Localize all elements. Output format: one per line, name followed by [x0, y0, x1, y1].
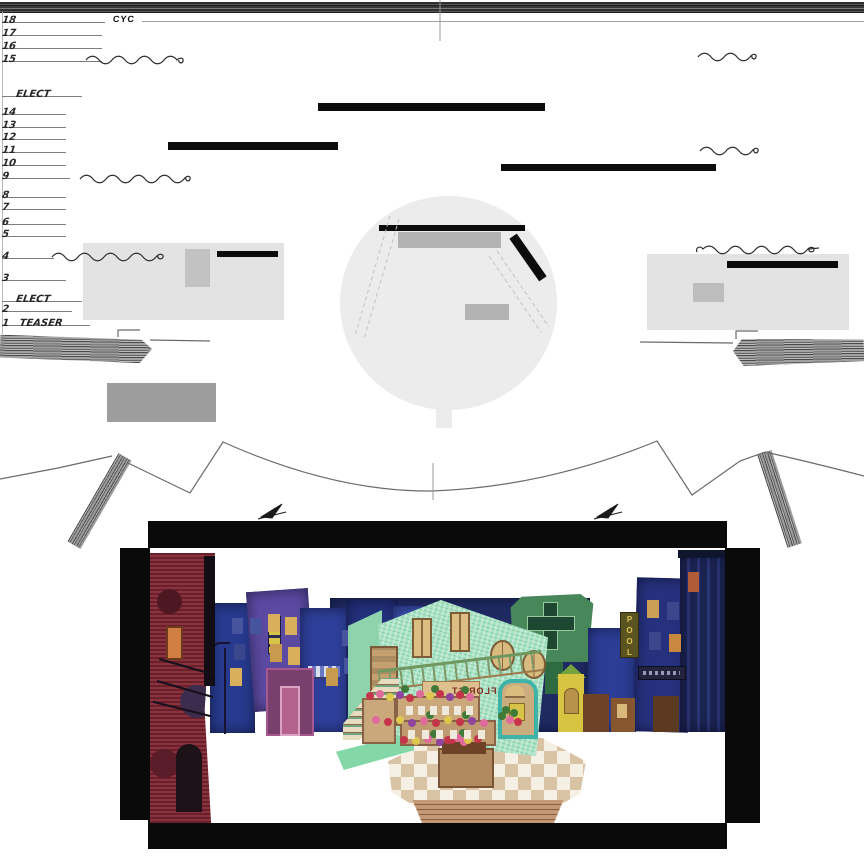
scanned-stage-design-sheet: CYC 18 17 16 15 ELECT 14 13 12 11 10 9 8… — [0, 0, 864, 859]
lineset-row: 10 — [2, 153, 66, 166]
board-flap-left — [120, 548, 150, 820]
upper-window — [450, 612, 470, 652]
lineset-label: 15 — [1, 54, 17, 66]
turntable-unit — [398, 232, 501, 248]
apron-edge-left — [0, 456, 112, 479]
flower-cluster — [366, 692, 374, 700]
board-flap-right — [725, 548, 760, 823]
lineset-row: 11 — [2, 140, 66, 153]
dark-windows — [232, 618, 243, 634]
shop-front — [583, 694, 609, 732]
lit-window-red — [688, 572, 699, 592]
step-mark-right — [736, 331, 758, 339]
lineset-label: 4 — [1, 251, 10, 263]
rendering-canvas: POOL — [150, 548, 725, 823]
storefront-door — [280, 686, 300, 736]
lineset-row: 2 — [2, 299, 72, 312]
building-cornice — [678, 550, 725, 558]
deck-line-left — [150, 340, 210, 341]
flown-scenery-bar — [501, 164, 716, 171]
lineset-label: 3 — [1, 273, 10, 285]
backdrop-building-tall — [680, 554, 725, 732]
center-dart-icon — [261, 504, 282, 518]
center-dart-icon — [258, 512, 286, 519]
stage-groundplan: CYC 18 17 16 15 ELECT 14 13 12 11 10 9 8… — [0, 0, 864, 520]
upstage-wall-band — [0, 2, 864, 13]
lineset-row: 15 — [2, 49, 102, 62]
lineset-label: 9 — [1, 171, 10, 183]
curtain-squiggle-icon — [700, 147, 758, 155]
flower-cluster — [400, 736, 408, 744]
arched-doorway — [176, 744, 202, 812]
marquee-sign — [638, 666, 686, 680]
curtain-squiggle-icon — [80, 175, 190, 183]
shop-front — [653, 696, 679, 732]
lit-window-orange — [166, 626, 183, 660]
flower-cluster — [444, 736, 452, 744]
flower-cluster — [372, 716, 380, 724]
cyc-label: CYC — [112, 14, 135, 24]
mixed-windows — [647, 600, 659, 618]
turntable-wall-bar — [379, 225, 525, 231]
flower-bush — [502, 706, 510, 714]
lineset-row: 9 — [2, 166, 70, 179]
lamp-post — [224, 648, 226, 734]
apron-edge — [128, 441, 765, 495]
platform-facing — [406, 800, 570, 823]
tormentor-right — [757, 450, 802, 548]
platform-wall-bar — [727, 261, 838, 268]
center-dart-icon — [594, 512, 622, 519]
lineset-row: 3 — [2, 268, 66, 281]
tormentor-left — [68, 453, 132, 549]
pool-sign-text: POOL — [625, 615, 634, 659]
pool-sign: POOL — [620, 612, 639, 658]
step-mark-left — [118, 330, 140, 337]
fanlight-window — [505, 685, 525, 698]
lineset-row: 14 — [2, 102, 66, 115]
shop-window — [617, 704, 627, 718]
lineset-label: 1 TEASER — [1, 318, 63, 330]
lineset-label: 5 — [1, 229, 10, 241]
lineset-row: 16 — [2, 36, 102, 49]
lineset-row: 4 — [2, 246, 54, 259]
turntable-unit — [465, 304, 509, 320]
lineset-row-teaser: 1 TEASER — [2, 313, 90, 326]
platform-unit — [185, 249, 210, 287]
cyc-line — [142, 21, 864, 22]
flower-pots — [406, 706, 413, 715]
lit-windows — [268, 614, 280, 632]
platform-wall-bar — [217, 251, 278, 257]
lineset-row: 17 — [2, 23, 102, 36]
deck-line-right — [640, 342, 733, 343]
flown-scenery-bar — [168, 142, 338, 150]
center-dart-icon — [597, 504, 618, 518]
proscenium-left — [0, 335, 152, 364]
upper-window — [412, 618, 432, 658]
lineset-label: ELECT — [15, 89, 51, 101]
flower-pots — [408, 730, 415, 739]
apron-edge-right — [765, 452, 864, 476]
lineset-row: 7 — [2, 197, 66, 210]
lineset-row: 18 — [2, 10, 105, 23]
flower-bench — [438, 748, 494, 788]
proscenium-right — [733, 337, 864, 366]
door-sign — [509, 703, 525, 721]
platform-unit — [693, 283, 724, 302]
brick-building-shadow-edge — [204, 556, 215, 686]
flown-scenery-bar — [318, 103, 545, 111]
turntable-stem — [436, 398, 452, 428]
lineset-row-electric: ELECT — [2, 84, 82, 97]
curtain-squiggle-icon — [698, 53, 756, 61]
apron-unit — [107, 383, 216, 422]
church-cross-horizontal — [527, 616, 575, 631]
lineset-row: 12 — [2, 127, 66, 140]
lineset-row: 5 — [2, 224, 66, 237]
arched-window — [564, 688, 579, 714]
curtain-squiggle-icon — [697, 246, 819, 254]
